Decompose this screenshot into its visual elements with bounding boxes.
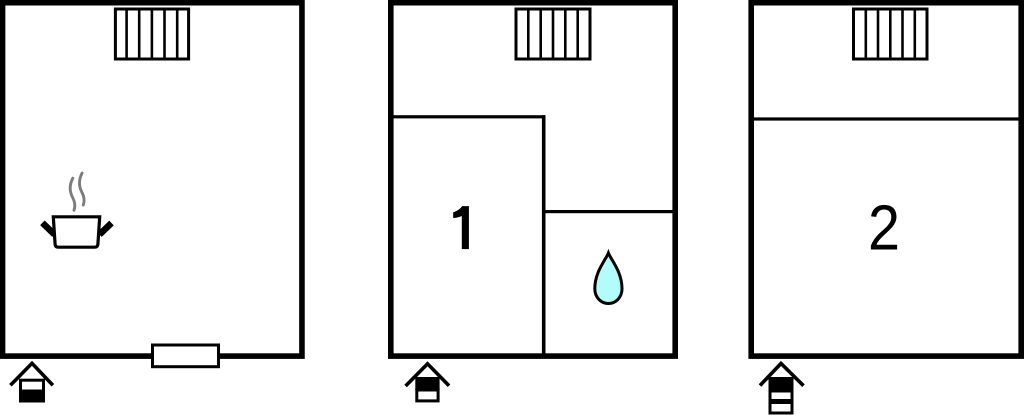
svg-text:2: 2 [868,192,900,264]
